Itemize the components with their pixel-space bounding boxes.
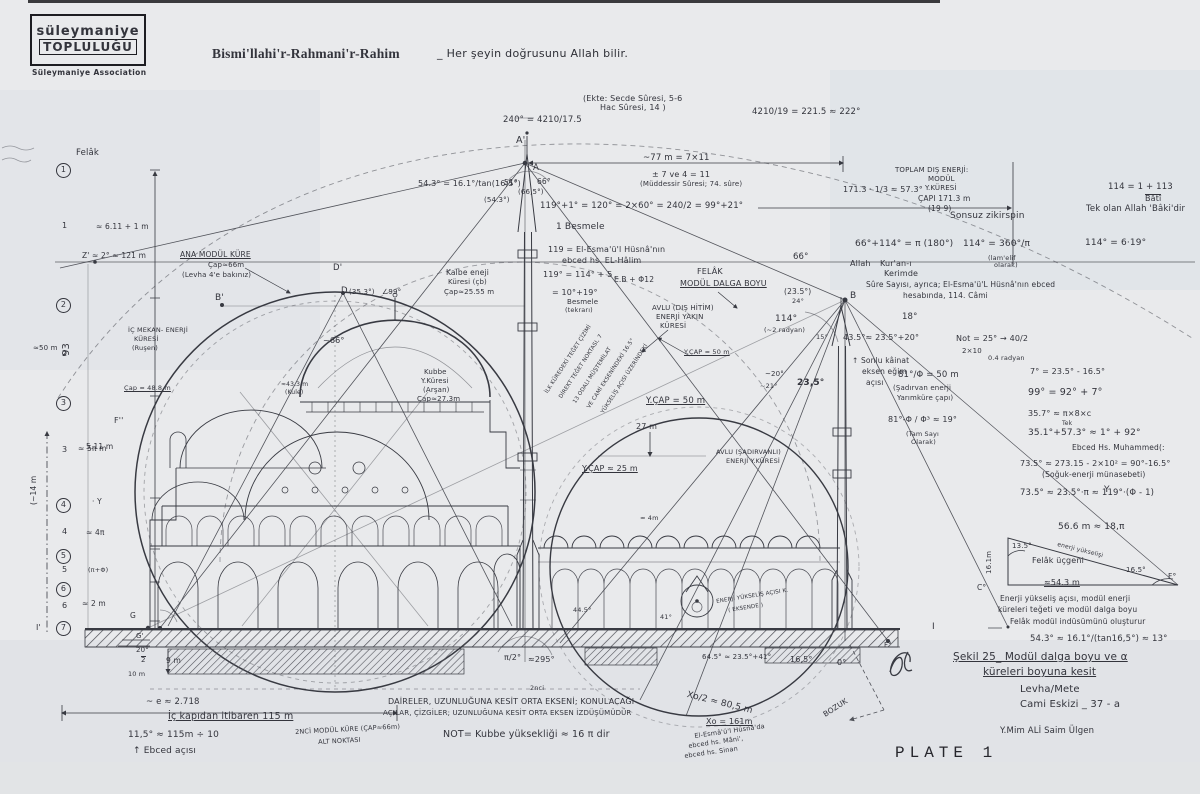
annotation: ENERJİ Y.KÜRESİ	[726, 458, 780, 465]
margin-interval: 1	[62, 222, 67, 230]
annotation: MODÜL	[928, 176, 955, 183]
annotation: (23.5°)	[784, 288, 811, 296]
annotation: 24°	[792, 298, 804, 305]
annotation: G'	[136, 633, 144, 640]
annotation: ANA MODÜL KÜRE	[180, 251, 251, 259]
annotation: 1 Besmele	[556, 223, 605, 232]
annotation: Çap ≈ 48.8 m	[124, 385, 171, 392]
annotation: ≈43.3 m	[281, 382, 308, 388]
annotation: Sonsuz zikirspin	[950, 212, 1025, 221]
annotation: = 10°+19°	[552, 289, 598, 297]
annotation: Enerji yükseliş açısı, modül enerji	[1000, 595, 1130, 603]
margin-scale-mark: 2	[56, 298, 71, 313]
annotation: 114° = 6·19°	[1085, 239, 1146, 248]
annotation: 11,5° ≈ 115m ÷ 10	[128, 731, 219, 740]
annotation: açısı	[866, 379, 884, 387]
annotation: ebced hs. EL-Hâlim	[562, 257, 641, 265]
margin-interval: 2	[62, 350, 67, 358]
annotation: (~14 m	[30, 476, 38, 505]
annotation: İÇ MEKAN- ENERJİ	[128, 327, 188, 334]
annotation: Küresi (çb)	[448, 279, 487, 286]
annotation: AVLU (DIŞ HİTİM)	[652, 305, 714, 312]
annotation: Şekil 25_ Modül dalga boyu ve α	[953, 652, 1128, 663]
annotation: (Şadırvan enerji	[893, 385, 951, 392]
annotation: Çap≈27.3m	[417, 396, 460, 403]
annotation: C°	[977, 584, 986, 592]
annotation: Olarak)	[911, 439, 936, 446]
annotation: 66°	[537, 178, 551, 186]
annotation: AVLU (ŞADIRVANLI)	[716, 449, 781, 456]
margin-interval: 3	[62, 446, 67, 454]
annotation: (Arşan)	[423, 387, 450, 394]
annotation: Xo/2 ≈ 80,5 m	[686, 691, 754, 716]
annotation: Cami Eskizi _ 37 - a	[1020, 700, 1120, 711]
annotation: Y	[1104, 486, 1110, 495]
annotation: (54.3°)	[484, 197, 510, 204]
annotation-layer: (Ekte: Secde Sûresi, 5-6Hac Sûresi, 14 )…	[0, 0, 1200, 794]
annotation: ≈50 m	[33, 345, 58, 352]
annotation: I'	[36, 624, 41, 632]
annotation: D	[341, 287, 348, 296]
annotation: (Tam Sayı	[906, 431, 939, 438]
annotation: 4210/19 = 221.5 ≈ 222°	[752, 108, 860, 117]
annotation: 119° = 114° + 5	[543, 271, 612, 279]
annotation: 13.5°	[1012, 543, 1032, 550]
annotation: (~2 radyan)	[764, 327, 805, 334]
annotation: Çap≈25.55 m	[444, 289, 494, 296]
annotation: ∠99°	[382, 289, 401, 296]
annotation: 54.3° ≈ 16.1°/(tan16,5°) ≈ 13°	[1030, 635, 1168, 644]
annotation: 23,5°	[797, 379, 824, 388]
annotation: Y.ÇAP ≈ 50 m	[684, 349, 730, 356]
annotation: 119°+1° = 120° = 2×60° = 240/2 = 99°+21°	[540, 202, 743, 211]
annotation: 81°-Φ / Φ³ ≈ 19°	[888, 416, 957, 424]
annotation: B	[850, 292, 856, 301]
annotation: Tek olan Allah 'Bâki'dir	[1086, 205, 1185, 214]
annotation: 15°	[816, 334, 828, 341]
annotation: 51°	[504, 179, 518, 187]
annotation: B'	[215, 294, 224, 303]
annotation: (tekrarı)	[565, 307, 593, 314]
annotation: KÜRESİ	[660, 323, 686, 330]
annotation: KÜRESİ	[134, 336, 158, 343]
annotation: olarak)	[994, 262, 1018, 269]
annotation: ~66°	[323, 337, 344, 345]
annotation: küreleri teğeti ve modül dalga boyu	[998, 606, 1137, 614]
annotation: ≈ 5π m	[78, 445, 107, 453]
annotation: 240° = 4210/17.5	[503, 116, 582, 125]
annotation: 114° = 360°/π	[963, 240, 1030, 249]
annotation: (66,5°)	[518, 189, 544, 196]
annotation: (19·9)	[928, 205, 951, 213]
annotation: 2nci	[530, 685, 544, 692]
annotation: İç kapıdan itibaren 115 m	[168, 712, 293, 722]
annotation: F°	[1168, 573, 1176, 581]
annotation: 44.5°	[573, 607, 591, 614]
annotation: Y.ÇAP ≈ 25 m	[582, 465, 638, 473]
annotation: Felâk	[76, 149, 99, 158]
annotation: ≈ 4π	[86, 529, 105, 537]
margin-scale-mark: 1	[56, 163, 71, 178]
annotation: 16.5°	[1126, 567, 1146, 574]
annotation: A	[533, 164, 539, 173]
annotation: ≈295°	[528, 656, 555, 664]
annotation: Bâtî	[1145, 194, 1161, 203]
annotation: 9 m	[166, 657, 181, 665]
margin-interval: 5	[62, 566, 67, 574]
annotation: ↑ Sonlu kâinat	[852, 357, 909, 365]
annotation: Not = 25° → 40/2	[956, 335, 1028, 343]
annotation: ( EKSENDE )	[728, 603, 764, 614]
annotation: Y.KÜRESİ	[925, 185, 957, 192]
annotation: Kerimde	[884, 270, 918, 278]
annotation: 7° = 23.5° - 16.5°	[1030, 368, 1105, 376]
annotation: 27 m	[636, 423, 657, 431]
annotation: Tek	[1062, 421, 1072, 427]
annotation: FELÂK	[697, 268, 723, 276]
margin-scale-mark: 5	[56, 549, 71, 564]
annotation: G	[130, 612, 136, 620]
annotation: 171.3 · 1/3 ≈ 57.3°	[843, 186, 923, 194]
margin-scale-mark: 7	[56, 621, 71, 636]
annotation: küreleri boyuna kesit	[983, 667, 1096, 678]
annotation: Hac Sûresi, 14 )	[600, 104, 666, 112]
annotation: D'	[333, 264, 342, 273]
annotation: Felâk modül indüsümünü oluşturur	[1010, 618, 1146, 626]
annotation: Kubbe	[424, 369, 447, 376]
annotation: MODÜL DALGA BOYU	[680, 280, 767, 288]
annotation: ≈ 6.11 + 1 m	[96, 223, 149, 231]
margin-interval: 6	[62, 602, 67, 610]
plate-sheet: süleymaniye TOPLULUĞU Süleymaniye Associ…	[0, 0, 1200, 794]
annotation: BOZUK	[822, 697, 849, 718]
annotation: ± 7 ve 4 = 11	[652, 171, 710, 179]
annotation: 18°	[902, 313, 918, 322]
annotation: ÇAPI 171.3 m	[918, 195, 970, 203]
annotation: 35.7° ≈ π×8×c	[1028, 410, 1091, 418]
annotation: 66°	[793, 253, 809, 262]
annotation: Y.ÇAP = 50 m	[646, 397, 705, 406]
annotation: (35.3°)	[349, 289, 375, 296]
annotation: ~ e ≈ 2.718	[146, 698, 200, 707]
annotation: (π+Φ)	[88, 567, 108, 574]
margin-scale-mark: 6	[56, 582, 71, 597]
annotation: 2	[141, 656, 146, 664]
annotation: NOT= Kubbe yüksekliği ≈ 16 π dir	[443, 730, 610, 740]
annotation: ~20°	[765, 371, 784, 378]
annotation: 35.1°+57.3° ≈ 1° + 92°	[1028, 429, 1141, 438]
annotation: hesabında, 114. Câmi	[903, 292, 988, 300]
annotation: Kur'an-ı	[880, 260, 912, 268]
annotation: 16.1m	[986, 551, 993, 574]
annotation: 119 = El-Esma'ü'l Hüsnâ'nın	[548, 246, 665, 254]
annotation: 99° = 92° + 7°	[1028, 388, 1103, 398]
annotation: 56.6 m ≈ 18,π	[1058, 523, 1125, 532]
annotation: 73.5° ≈ 273.15 - 2×10² = 90°-16.5°	[1020, 460, 1171, 468]
annotation: TOPLAM DIŞ ENERJİ:	[895, 167, 968, 174]
annotation: 10 m	[128, 671, 145, 678]
annotation: ~21°	[760, 383, 778, 390]
plate-number: PLATE 1	[895, 744, 997, 762]
annotation: 0.4 radyan	[988, 355, 1025, 362]
annotation: 20°	[136, 647, 149, 654]
annotation: Z' ≈ 2° ≈ 121 m	[82, 252, 146, 260]
annotation: Allah	[850, 260, 871, 268]
annotation: Ebced Hs. Muhammed(:	[1072, 444, 1165, 452]
annotation: Sûre Sayısı, ayrıca; El-Esma'ü'L Hüsnâ'n…	[866, 281, 1055, 289]
annotation: ≈ 4m	[640, 515, 659, 522]
annotation: 41°	[660, 614, 672, 621]
annotation: ENERJİ YAKIN	[656, 314, 704, 321]
annotation: · Y	[92, 498, 102, 506]
annotation: F''	[114, 417, 123, 425]
annotation: 73.5° ≈ 23.5°·π ≈ 119°·(Φ - 1)	[1020, 489, 1154, 498]
annotation: Yarımküre çapı)	[897, 395, 953, 402]
annotation: 64.5° ≈ 23.5°+41°	[702, 654, 771, 661]
margin-interval: 4	[62, 528, 67, 536]
annotation: Felâk üçgeni	[1032, 557, 1084, 565]
annotation: E.B + Φ12	[614, 276, 654, 284]
annotation: ≈ 2 m	[82, 600, 106, 608]
annotation: π/2°	[504, 654, 521, 662]
annotation: 114°	[775, 315, 797, 324]
annotation: Levha/Mete	[1020, 685, 1080, 696]
annotation: Kalbe eneji	[446, 269, 489, 277]
annotation: 0°	[837, 659, 846, 667]
annotation: ≈54.3 m	[1044, 579, 1080, 587]
annotation: (Soğuk-enerji münasebeti)	[1042, 471, 1145, 479]
margin-scale-mark: 3	[56, 396, 71, 411]
annotation: (Müddessir Sûresi; 74. sûre)	[640, 181, 742, 188]
annotation: 2×10	[962, 348, 982, 355]
annotation: (Ruşen)	[132, 345, 158, 352]
annotation: 114 = 1 + 113	[1108, 183, 1173, 192]
annotation: A'	[516, 136, 525, 146]
margin-scale-mark: 4	[56, 498, 71, 513]
annotation: Y.Mim ALİ Saim Ülgen	[1000, 727, 1094, 736]
annotation: ↑ Ebced açısı	[133, 747, 196, 756]
annotation: 2NCİ MODÜL KÜRE (ÇAP≈66m)	[295, 724, 400, 736]
annotation: (Levha 4'e bakınız)	[182, 272, 251, 279]
annotation: 81°/Φ = 50 m	[898, 371, 959, 380]
annotation: (Kule)	[285, 390, 303, 396]
annotation: I	[932, 623, 935, 632]
annotation: ALT NOKTASI	[318, 737, 361, 746]
annotation: DAİRELER, UZUNLUĞUNA KESİT ORTA EKSENİ; …	[388, 698, 634, 706]
annotation: ~77 m = 7×11	[643, 154, 710, 163]
annotation: 16,5°	[790, 656, 813, 664]
annotation: F°	[884, 642, 892, 649]
annotation: 66°+114° = π (180°)	[855, 240, 953, 249]
annotation: Y.Küresi	[421, 378, 449, 385]
annotation: 43.5°≈ 23.5°+20°	[843, 334, 919, 342]
annotation: AÇILAR, ÇİZGİLER; UZUNLUĞUNA KESİT ORTA …	[383, 710, 631, 717]
annotation: Çap≈66m	[208, 262, 244, 269]
